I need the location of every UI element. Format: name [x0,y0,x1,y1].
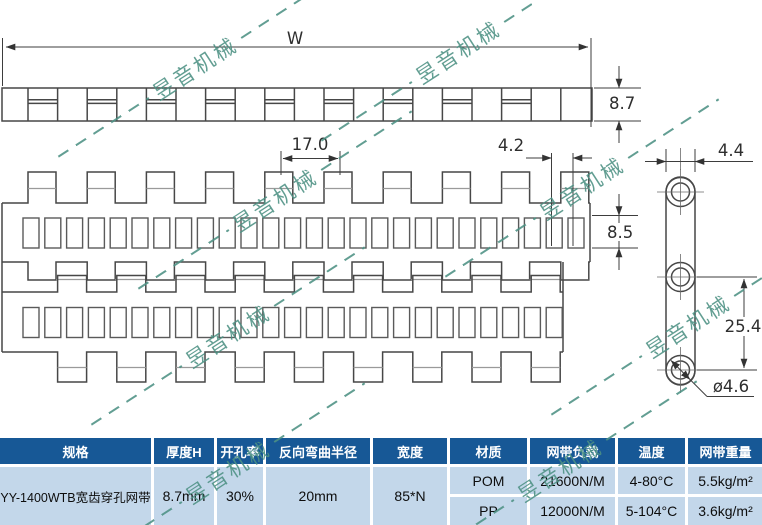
cell-temp-pp: 5-104°C [618,497,685,525]
dim-label-thickness: 8.7 [609,94,635,113]
cell-weight-pp: 3.6kg/m² [688,497,762,525]
header-weight: 网带重量 [688,438,762,464]
cell-bend-radius: 20mm [266,467,370,525]
cell-thickness: 8.7mm [154,467,214,525]
dim-label-hole-dia: ø4.6 [713,377,749,396]
header-temperature: 温度 [618,438,685,464]
dim-overall-width: W [3,29,592,127]
cell-width: 85*N [373,467,447,525]
technical-drawing: W 8.7 17.0 4.2 [0,0,762,438]
cell-open-ratio: 30% [217,467,263,525]
dim-tooth-pitch: 17.0 [281,135,340,175]
dim-thickness: 8.7 [594,66,641,143]
header-bend-radius: 反向弯曲半径 [266,438,370,464]
link-plate-view [657,148,704,393]
cell-temp-pom: 4-80°C [618,467,685,494]
header-width: 宽度 [373,438,447,464]
header-thickness: 厚度H [154,438,214,464]
dim-slot-height: 8.5 [592,194,639,270]
header-open-ratio: 开孔率 [217,438,263,464]
dim-label-slot-width: 4.2 [498,136,524,155]
dim-label-w: W [287,29,303,48]
belt-side-view [2,88,592,121]
header-spec: 规格 [0,438,151,464]
dim-label-plate-width: 4.4 [718,141,744,160]
cell-material-pp: PP [450,497,527,525]
cell-load-pp: 12000N/M [530,497,615,525]
dim-label-pitch: 17.0 [292,135,329,154]
cell-material-pom: POM [450,467,527,494]
header-material: 材质 [450,438,527,464]
header-load: 网带负载 [530,438,615,464]
belt-plan-view [2,172,590,382]
cell-weight-pom: 5.5kg/m² [688,467,762,494]
cell-load-pom: 21600N/M [530,467,615,494]
belt-spec-sheet: W 8.7 17.0 4.2 [0,0,762,525]
cell-spec: YY-1400WTB宽齿穿孔网带 [0,467,151,525]
dim-label-hole-pitch: 25.4 [725,317,762,336]
spec-table: 规格 厚度H 开孔率 反向弯曲半径 宽度 材质 网带负载 温度 网带重量 YY-… [0,438,762,525]
dim-plate-width: 4.4 [645,141,753,172]
dim-label-slot-height: 8.5 [607,223,633,242]
dim-hole-pitch: 25.4 [697,277,762,370]
